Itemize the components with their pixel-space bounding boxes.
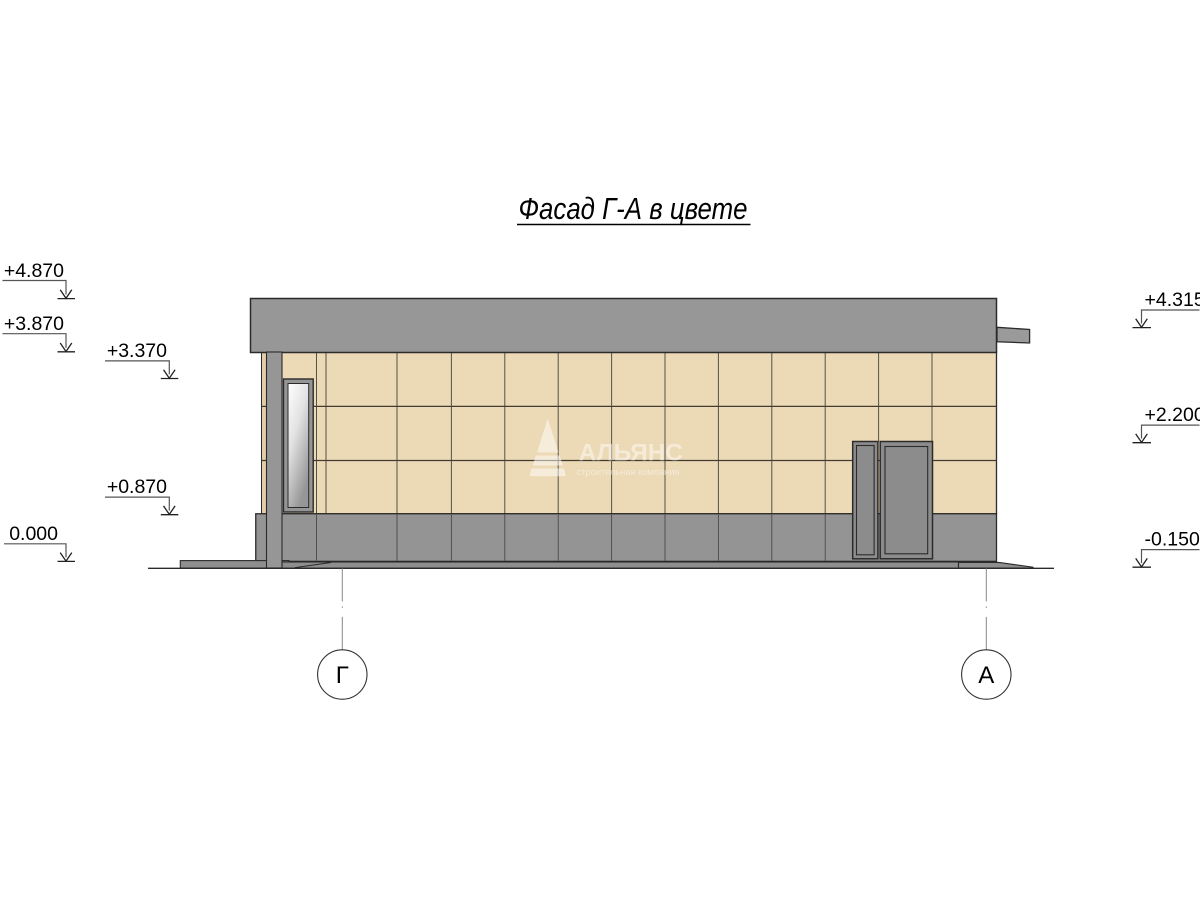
svg-text:+4.315: +4.315 <box>1145 289 1200 311</box>
svg-text:АЛЬЯНС: АЛЬЯНС <box>579 440 683 467</box>
svg-text:+4.870: +4.870 <box>4 260 64 282</box>
svg-text:+0.870: +0.870 <box>107 476 167 498</box>
svg-text:Г: Г <box>336 662 349 689</box>
svg-text:0.000: 0.000 <box>9 523 58 545</box>
svg-text:А: А <box>978 662 994 689</box>
svg-text:+3.370: +3.370 <box>107 340 167 362</box>
svg-text:строительная компания: строительная компания <box>577 467 680 478</box>
svg-text:+3.870: +3.870 <box>4 313 64 335</box>
svg-text:-0.150: -0.150 <box>1145 528 1200 550</box>
svg-text:Фасад Г-А в цвете: Фасад Г-А в цвете <box>519 191 748 226</box>
svg-text:+2.200: +2.200 <box>1145 404 1200 426</box>
